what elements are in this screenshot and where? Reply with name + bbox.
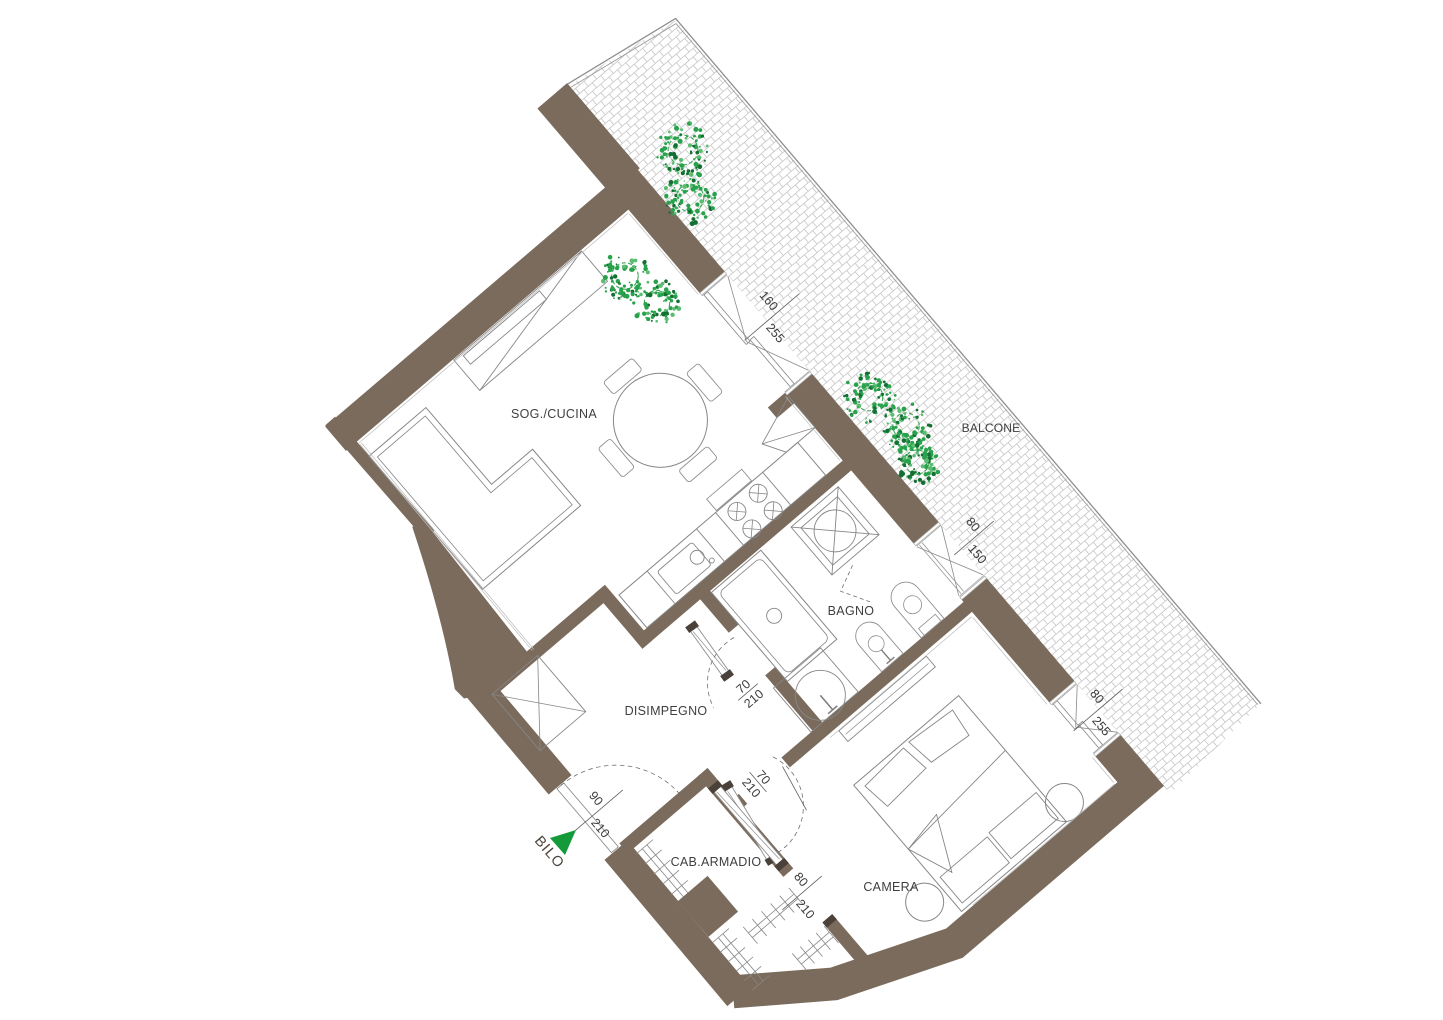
svg-text:CAMERA: CAMERA — [863, 880, 919, 894]
svg-text:BAGNO: BAGNO — [828, 604, 875, 618]
svg-text:DISIMPEGNO: DISIMPEGNO — [625, 704, 708, 718]
svg-text:CAB.ARMADIO: CAB.ARMADIO — [671, 855, 762, 869]
svg-text:BALCONE: BALCONE — [962, 421, 1021, 435]
svg-text:SOG./CUCINA: SOG./CUCINA — [511, 407, 597, 421]
